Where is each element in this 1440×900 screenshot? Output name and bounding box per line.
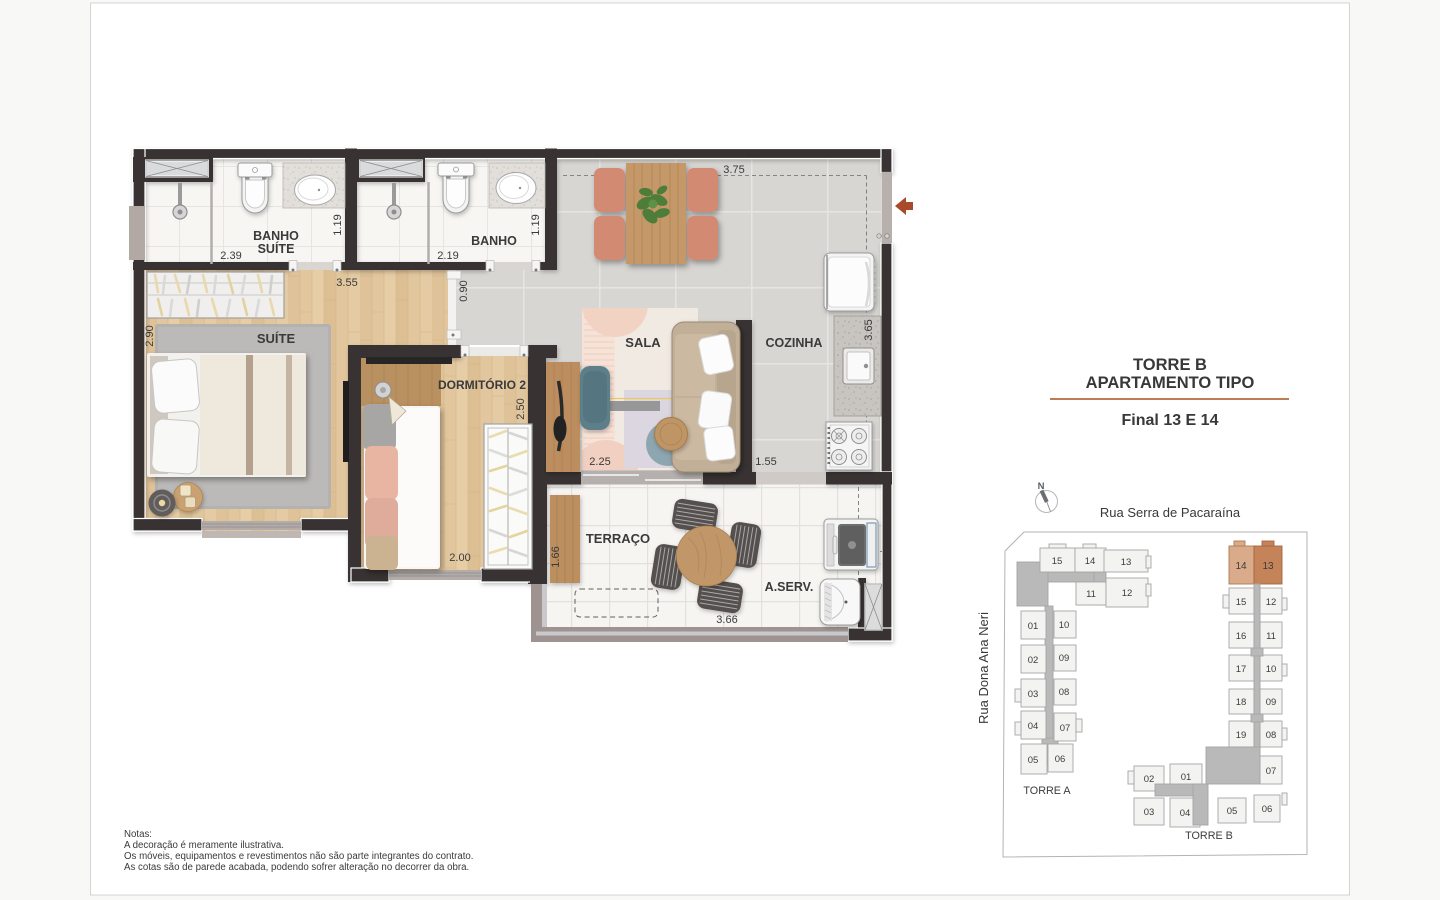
svg-text:SALA: SALA bbox=[625, 335, 661, 350]
svg-text:01: 01 bbox=[1181, 772, 1192, 783]
svg-text:COZINHA: COZINHA bbox=[766, 336, 823, 350]
svg-text:07: 07 bbox=[1060, 723, 1071, 734]
svg-text:TORRE B: TORRE B bbox=[1185, 830, 1233, 842]
svg-text:18: 18 bbox=[1236, 697, 1247, 708]
svg-text:1.55: 1.55 bbox=[755, 456, 776, 468]
svg-text:06: 06 bbox=[1262, 804, 1273, 815]
svg-text:11: 11 bbox=[1086, 589, 1096, 600]
svg-text:APARTAMENTO TIPO: APARTAMENTO TIPO bbox=[1086, 374, 1255, 392]
svg-text:1.19: 1.19 bbox=[530, 214, 542, 235]
svg-text:17: 17 bbox=[1236, 664, 1247, 675]
svg-text:04: 04 bbox=[1028, 721, 1039, 732]
svg-text:02: 02 bbox=[1028, 655, 1039, 666]
svg-text:1.66: 1.66 bbox=[550, 546, 562, 567]
svg-text:09: 09 bbox=[1266, 697, 1277, 708]
svg-text:03: 03 bbox=[1028, 689, 1039, 700]
svg-text:09: 09 bbox=[1059, 653, 1070, 664]
svg-text:TORRE A: TORRE A bbox=[1023, 785, 1071, 797]
svg-text:13: 13 bbox=[1121, 557, 1132, 568]
svg-text:3.66: 3.66 bbox=[716, 614, 737, 626]
svg-text:BANHO: BANHO bbox=[471, 234, 517, 248]
svg-text:0.90: 0.90 bbox=[458, 280, 470, 301]
svg-text:14: 14 bbox=[1085, 556, 1096, 567]
svg-text:06: 06 bbox=[1055, 754, 1066, 765]
svg-text:07: 07 bbox=[1266, 766, 1277, 777]
svg-text:10: 10 bbox=[1059, 620, 1070, 631]
svg-text:3.65: 3.65 bbox=[863, 319, 875, 340]
svg-text:2.39: 2.39 bbox=[220, 250, 241, 262]
svg-text:1.19: 1.19 bbox=[332, 214, 344, 235]
svg-text:13: 13 bbox=[1262, 561, 1274, 572]
svg-text:Final 13 E 14: Final 13 E 14 bbox=[1122, 412, 1219, 429]
svg-text:11: 11 bbox=[1266, 631, 1276, 642]
svg-text:BANHO: BANHO bbox=[253, 229, 299, 243]
svg-text:01: 01 bbox=[1028, 621, 1039, 632]
svg-text:A.SERV.: A.SERV. bbox=[765, 580, 814, 594]
svg-text:05: 05 bbox=[1227, 806, 1238, 817]
svg-text:Rua Serra de Pacaraína: Rua Serra de Pacaraína bbox=[1100, 505, 1241, 520]
svg-text:2.90: 2.90 bbox=[144, 325, 156, 346]
svg-text:3.75: 3.75 bbox=[723, 164, 744, 176]
svg-text:DORMITÓRIO 2: DORMITÓRIO 2 bbox=[438, 377, 526, 392]
svg-text:SUÍTE: SUÍTE bbox=[257, 331, 296, 346]
svg-text:10: 10 bbox=[1266, 664, 1277, 675]
svg-text:N: N bbox=[1038, 481, 1045, 492]
svg-text:16: 16 bbox=[1236, 631, 1247, 642]
svg-text:2.50: 2.50 bbox=[515, 398, 527, 419]
svg-text:TERRAÇO: TERRAÇO bbox=[586, 531, 650, 546]
svg-text:2.25: 2.25 bbox=[589, 456, 610, 468]
svg-text:03: 03 bbox=[1144, 807, 1155, 818]
svg-text:Notas:: Notas: bbox=[124, 829, 152, 840]
svg-text:15: 15 bbox=[1052, 556, 1063, 567]
svg-text:TORRE B: TORRE B bbox=[1133, 356, 1207, 374]
svg-text:14: 14 bbox=[1235, 561, 1247, 572]
svg-text:2.00: 2.00 bbox=[449, 552, 470, 564]
svg-text:08: 08 bbox=[1059, 687, 1070, 698]
svg-text:08: 08 bbox=[1266, 730, 1277, 741]
svg-text:04: 04 bbox=[1180, 808, 1191, 819]
svg-text:3.55: 3.55 bbox=[336, 277, 357, 289]
svg-text:15: 15 bbox=[1236, 597, 1247, 608]
svg-text:2.19: 2.19 bbox=[437, 250, 458, 262]
svg-text:02: 02 bbox=[1144, 774, 1155, 785]
svg-text:05: 05 bbox=[1028, 755, 1039, 766]
svg-text:12: 12 bbox=[1266, 597, 1277, 608]
svg-text:Os móveis, equipamentos e reve: Os móveis, equipamentos e revestimentos … bbox=[124, 851, 473, 862]
svg-text:SUÍTE: SUÍTE bbox=[258, 241, 295, 256]
svg-text:12: 12 bbox=[1122, 588, 1133, 599]
svg-text:19: 19 bbox=[1236, 730, 1247, 741]
svg-text:Rua Dona Ana Neri: Rua Dona Ana Neri bbox=[976, 612, 991, 724]
svg-text:As cotas são de parede acabada: As cotas são de parede acabada, podendo … bbox=[124, 862, 469, 873]
svg-text:A decoração é meramente ilustr: A decoração é meramente ilustrativa. bbox=[124, 840, 284, 851]
